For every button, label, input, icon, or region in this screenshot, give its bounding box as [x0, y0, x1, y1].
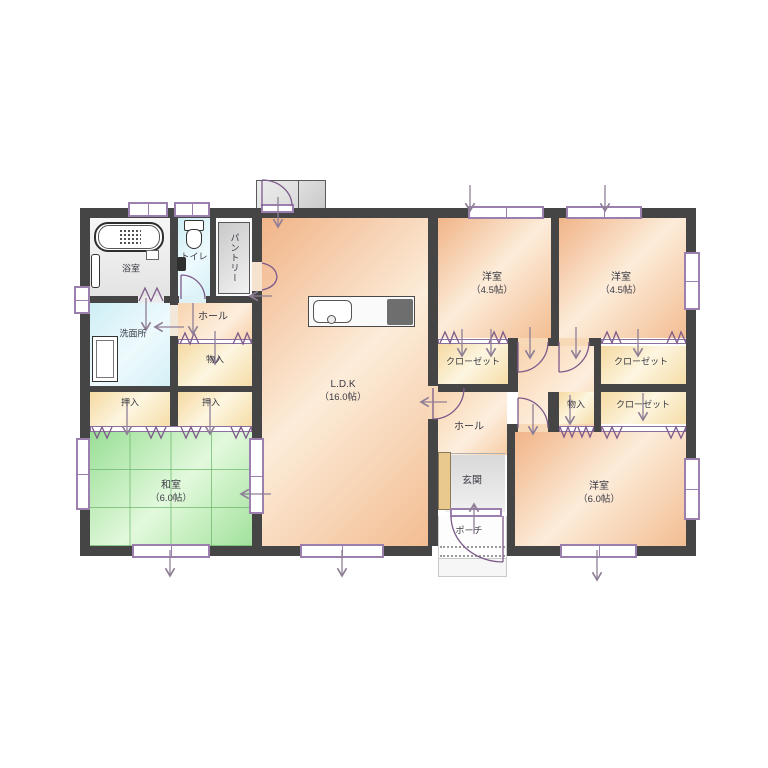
label-oshiire-1: 押入 [121, 397, 139, 410]
wall-stub-h6c [594, 424, 601, 432]
porch-dotted-edge-2 [440, 555, 505, 557]
wall-washroom-hall [170, 336, 178, 432]
track-storage-left [178, 339, 252, 344]
opening-washroom-hall [170, 305, 178, 336]
track-oshiire-fusuma [90, 426, 252, 432]
label-ldk: L.D.K（16.0帖） [320, 378, 367, 404]
wall-genkan-east [507, 424, 515, 546]
wall-ldk-east-b [428, 419, 438, 546]
label-bedroom-3: 洋室（6.0帖） [578, 480, 620, 506]
kitchen-stove [387, 299, 413, 325]
wall-ldk-west-c [252, 514, 262, 546]
track-closet-1 [438, 339, 508, 344]
wall-closet1-south [438, 384, 518, 392]
label-storage-right: 物入 [567, 399, 585, 412]
window-bedroom2-north [566, 206, 642, 219]
bath-drain [146, 250, 159, 260]
room-hall-left [178, 303, 252, 344]
label-pantry: パントリー [228, 233, 241, 283]
floor-plan: 浴室 トイレ パントリー 洗面所 ホール 物入 押入 押入 和室（6.0帖） L… [0, 0, 768, 768]
opening-pantry-door [252, 262, 262, 291]
opening-bedroom2-door [559, 338, 589, 346]
opening-toilet-door [179, 296, 206, 303]
label-bedroom-2: 洋室（4.5帖） [600, 271, 642, 297]
window-toilet-north [174, 202, 210, 217]
label-storage-left: 物入 [206, 354, 224, 367]
label-closet-1: クローゼット [446, 356, 500, 369]
opening-bedroom3-door [518, 424, 548, 432]
track-storage-right [559, 426, 594, 432]
label-toilet: トイレ [180, 251, 207, 264]
label-porch: ポーチ [455, 525, 482, 538]
track-closet-2 [601, 339, 686, 344]
window-bedroom3-south [560, 544, 637, 558]
back-door [261, 204, 294, 213]
shower-panel [91, 254, 100, 288]
window-bedroom1-north [468, 206, 544, 219]
opening-ldk-hall [428, 386, 438, 419]
label-bedroom-1: 洋室（4.5帖） [471, 271, 513, 297]
track-closet-3 [601, 426, 686, 432]
toilet-bowl [186, 229, 202, 249]
shoe-cabinet [438, 452, 451, 510]
label-hall-right: ホール [454, 421, 484, 434]
washing-machine-inner [96, 340, 114, 378]
label-washroom: 洗面所 [119, 328, 146, 341]
wall-ldk-east-a [428, 208, 438, 386]
opening-bath-door [138, 296, 164, 303]
wall-h-oshiire-top [80, 386, 262, 392]
window-washroom-west [74, 286, 90, 314]
label-closet-3: クローゼット [616, 399, 670, 412]
porch-dotted-edge-1 [440, 546, 505, 548]
label-washitsu: 和室（6.0帖） [150, 479, 192, 505]
window-washitsu-west [76, 438, 90, 510]
window-bedroom2-east [684, 252, 700, 310]
window-ldk-south [300, 544, 384, 558]
porch-step [438, 558, 507, 577]
wall-h-bath-b [164, 296, 179, 303]
window-washitsu-south [132, 544, 210, 558]
label-bathroom: 浴室 [122, 263, 140, 276]
opening-bedroom1-door [518, 338, 548, 346]
kitchen-faucet [327, 315, 336, 324]
label-closet-2: クローゼット [614, 356, 668, 369]
window-bathroom-north [128, 202, 168, 217]
wall-h-bath-c [206, 296, 252, 303]
wall-ldk-west-a [252, 208, 262, 262]
label-genkan: 玄関 [462, 475, 482, 488]
label-oshiire-2: 押入 [202, 397, 220, 410]
wall-bedroom1-2 [551, 208, 559, 338]
wall-closet2-south [594, 384, 686, 392]
label-hall-left: ホール [198, 311, 228, 324]
wall-stub-doors [548, 338, 559, 346]
wall-ldk-west-b [252, 291, 262, 438]
wall-toilet-pantry [210, 218, 216, 296]
sliding-door-washitsu-ldk [249, 438, 264, 514]
genkan-step-line [445, 453, 505, 454]
entry-door [450, 508, 502, 517]
wall-stub-h6b [548, 424, 559, 432]
window-bedroom3-east [684, 458, 700, 520]
bathtub-texture [119, 229, 141, 245]
